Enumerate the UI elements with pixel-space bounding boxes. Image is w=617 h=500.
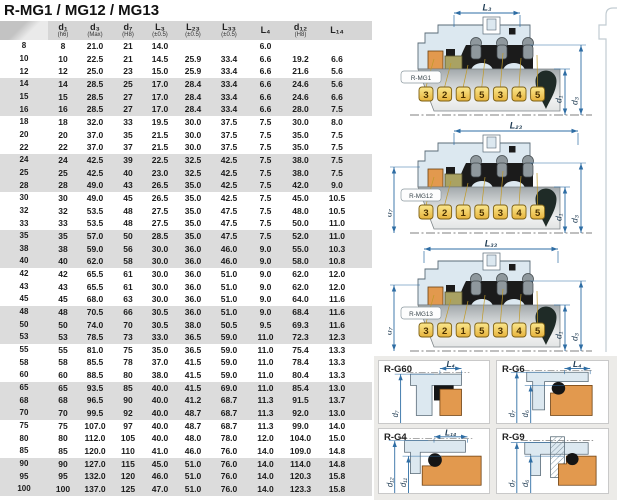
value-cell: 42.0 bbox=[283, 179, 318, 192]
row-size-cell: 15 bbox=[0, 91, 48, 104]
value-cell: 35 bbox=[112, 129, 144, 142]
inner-dia-label: d₁ bbox=[554, 331, 564, 339]
callout-4: 4 bbox=[512, 87, 526, 101]
table-row: 222237.03721.530.037.57.535.07.5 bbox=[0, 141, 372, 154]
value-cell: 9.0 bbox=[248, 268, 283, 281]
value-cell: 7.5 bbox=[248, 154, 283, 167]
value-cell: 59.0 bbox=[78, 243, 112, 256]
row-filler bbox=[356, 318, 372, 331]
top-dimension-label: L₃₃ bbox=[485, 239, 498, 249]
seal-diagram-r-mg1: R-MG13215345L₃d₁d₃ bbox=[388, 3, 617, 121]
svg-text:3: 3 bbox=[423, 326, 428, 337]
row-filler bbox=[356, 306, 372, 319]
value-cell: 35.0 bbox=[144, 344, 176, 357]
svg-text:3: 3 bbox=[498, 326, 503, 337]
row-filler bbox=[356, 458, 372, 471]
value-cell: 59.0 bbox=[210, 331, 248, 344]
value-cell: 11.6 bbox=[318, 306, 356, 319]
value-cell: 7.5 bbox=[248, 205, 283, 218]
column-header: d₁₂(H8) bbox=[283, 21, 318, 40]
value-cell: 70 bbox=[48, 407, 78, 420]
table-row: 7575107.09740.048.768.711.399.014.0 bbox=[0, 420, 372, 433]
value-cell: 41.5 bbox=[176, 369, 210, 382]
seat-panel-r-g6: L₄d₇d₆R-G6 bbox=[496, 360, 609, 424]
row-size-cell: 95 bbox=[0, 470, 48, 483]
value-cell: 112.0 bbox=[78, 432, 112, 445]
row-filler bbox=[356, 192, 372, 205]
value-cell: 41.5 bbox=[176, 382, 210, 395]
value-cell: 36.0 bbox=[176, 243, 210, 256]
svg-text:3: 3 bbox=[423, 90, 428, 101]
value-cell: 15.8 bbox=[318, 470, 356, 483]
value-cell: 21 bbox=[112, 40, 144, 53]
value-cell: 76.0 bbox=[210, 483, 248, 496]
dimension-table: d₁(h6)d₃(Max)d₇(H8)L₃(±0.5)L₂₃(±0.5)L₃₃(… bbox=[0, 21, 372, 496]
row-size-cell: 53 bbox=[0, 331, 48, 344]
value-cell: 11.6 bbox=[318, 318, 356, 331]
value-cell: 26.5 bbox=[144, 192, 176, 205]
row-size-cell: 80 bbox=[0, 432, 48, 445]
seal-diagram-svg: R-MG123215345L₂₃d₁d₃d₇ bbox=[388, 121, 617, 239]
row-size-cell: 33 bbox=[0, 217, 48, 230]
value-cell: 80.4 bbox=[283, 369, 318, 382]
row-size-cell: 16 bbox=[0, 103, 48, 116]
value-cell: 37.5 bbox=[210, 116, 248, 129]
table-row: 161628.52717.028.433.46.628.07.5 bbox=[0, 103, 372, 116]
value-cell: 30.0 bbox=[283, 116, 318, 129]
value-cell: 73 bbox=[112, 331, 144, 344]
value-cell: 6.6 bbox=[248, 78, 283, 91]
table-row: 606088.58038.041.559.011.080.413.3 bbox=[0, 369, 372, 382]
value-cell: 85 bbox=[112, 382, 144, 395]
value-cell: 92 bbox=[112, 407, 144, 420]
value-cell: 15.0 bbox=[318, 432, 356, 445]
table-row: 505074.07030.538.050.59.569.311.6 bbox=[0, 318, 372, 331]
callout-4: 4 bbox=[512, 323, 526, 337]
callout-3: 3 bbox=[493, 87, 507, 101]
value-cell: 80 bbox=[112, 369, 144, 382]
corner-header bbox=[0, 21, 48, 40]
value-cell: 40 bbox=[112, 167, 144, 180]
dia-dimension-label: d₁₂ bbox=[385, 477, 394, 487]
value-cell: 14.0 bbox=[144, 40, 176, 53]
value-cell: 24 bbox=[48, 154, 78, 167]
value-cell: 23 bbox=[112, 65, 144, 78]
value-cell: 40 bbox=[48, 255, 78, 268]
page-title: R-MG1 / MG12 / MG13 bbox=[4, 2, 159, 19]
callout-2: 2 bbox=[438, 205, 452, 219]
value-cell: 100 bbox=[48, 483, 78, 496]
table-row: 8585120.011041.046.076.014.0109.014.8 bbox=[0, 445, 372, 458]
header-filler bbox=[356, 21, 372, 40]
value-cell: 107.0 bbox=[78, 420, 112, 433]
value-cell: 11.6 bbox=[318, 293, 356, 306]
value-cell: 14.0 bbox=[248, 483, 283, 496]
value-cell: 30.5 bbox=[144, 306, 176, 319]
table-row: 434365.56130.036.051.09.062.012.0 bbox=[0, 280, 372, 293]
value-cell: 22.5 bbox=[144, 154, 176, 167]
callout-3: 3 bbox=[419, 323, 433, 337]
row-size-cell: 68 bbox=[0, 394, 48, 407]
column-header: L₃(±0.5) bbox=[144, 21, 176, 40]
value-cell: 42.5 bbox=[210, 179, 248, 192]
value-cell: 27.5 bbox=[144, 205, 176, 218]
oring bbox=[428, 453, 442, 467]
svg-text:5: 5 bbox=[535, 208, 541, 219]
value-cell: 30.0 bbox=[176, 129, 210, 142]
value-cell: 25.9 bbox=[176, 65, 210, 78]
value-cell: 105 bbox=[112, 432, 144, 445]
value-cell: 42.5 bbox=[210, 192, 248, 205]
value-cell: 123.3 bbox=[283, 483, 318, 496]
value-cell: 59.0 bbox=[210, 356, 248, 369]
value-cell: 10.5 bbox=[318, 192, 356, 205]
row-size-cell: 28 bbox=[0, 179, 48, 192]
value-cell: 24.6 bbox=[283, 91, 318, 104]
table-row: 141428.52517.028.433.46.624.65.6 bbox=[0, 78, 372, 91]
value-cell: 40.0 bbox=[144, 407, 176, 420]
row-filler bbox=[356, 420, 372, 433]
svg-text:2: 2 bbox=[442, 208, 447, 219]
value-cell: 21.0 bbox=[78, 40, 112, 53]
top-dimension-label: L₄ bbox=[446, 361, 454, 369]
table-row: 484870.56630.536.051.09.068.411.6 bbox=[0, 306, 372, 319]
value-cell: 11.0 bbox=[248, 382, 283, 395]
value-cell: 32.0 bbox=[78, 116, 112, 129]
value-cell: 57.0 bbox=[78, 230, 112, 243]
value-cell: 53 bbox=[48, 331, 78, 344]
row-size-cell: 60 bbox=[0, 369, 48, 382]
value-cell: 61 bbox=[112, 268, 144, 281]
value-cell: 7.5 bbox=[248, 230, 283, 243]
row-filler bbox=[356, 103, 372, 116]
value-cell: 36.0 bbox=[176, 306, 210, 319]
value-cell: 40.0 bbox=[144, 432, 176, 445]
row-size-cell: 38 bbox=[0, 243, 48, 256]
row-filler bbox=[356, 268, 372, 281]
value-cell: 35.0 bbox=[176, 230, 210, 243]
value-cell: 22.5 bbox=[78, 53, 112, 66]
value-cell: 33.4 bbox=[210, 65, 248, 78]
value-cell: 28.5 bbox=[144, 230, 176, 243]
table-row: 707099.59240.048.768.711.392.013.0 bbox=[0, 407, 372, 420]
value-cell: 36.0 bbox=[176, 293, 210, 306]
seat-panel-label: R-G4 bbox=[384, 432, 407, 443]
svg-text:2: 2 bbox=[442, 326, 447, 337]
row-size-cell: 20 bbox=[0, 129, 48, 142]
value-cell: 51.0 bbox=[210, 268, 248, 281]
value-cell: 59.0 bbox=[210, 344, 248, 357]
value-cell: 40.0 bbox=[144, 420, 176, 433]
row-filler bbox=[356, 445, 372, 458]
value-cell: 7.5 bbox=[248, 167, 283, 180]
table-row: 242442.53922.532.542.57.538.07.5 bbox=[0, 154, 372, 167]
row-size-cell: 10 bbox=[0, 53, 48, 66]
svg-text:5: 5 bbox=[479, 326, 485, 337]
value-cell: 11.0 bbox=[318, 217, 356, 230]
diagram-label: R-MG1 bbox=[411, 75, 432, 82]
table-row: 252542.54023.032.542.57.538.07.5 bbox=[0, 167, 372, 180]
value-cell: 36.0 bbox=[176, 280, 210, 293]
value-cell: 12.3 bbox=[318, 331, 356, 344]
value-cell: 40.0 bbox=[144, 382, 176, 395]
value-cell: 45.0 bbox=[144, 458, 176, 471]
value-cell: 36.5 bbox=[176, 344, 210, 357]
value-cell: 7.5 bbox=[318, 167, 356, 180]
row-size-cell: 18 bbox=[0, 116, 48, 129]
value-cell: 42 bbox=[48, 268, 78, 281]
diagram-label: R-MG12 bbox=[409, 193, 433, 200]
value-cell: 49.0 bbox=[78, 179, 112, 192]
row-filler bbox=[356, 40, 372, 53]
row-size-cell: 48 bbox=[0, 306, 48, 319]
value-cell: 18 bbox=[48, 116, 78, 129]
row-size-cell: 14 bbox=[0, 78, 48, 91]
value-cell: 74.0 bbox=[78, 318, 112, 331]
table-row: 9595132.012046.051.076.014.0120.315.8 bbox=[0, 470, 372, 483]
value-cell: 120 bbox=[112, 470, 144, 483]
value-cell: 49.0 bbox=[78, 192, 112, 205]
value-cell: 38.0 bbox=[176, 318, 210, 331]
row-filler bbox=[356, 344, 372, 357]
value-cell: 51.0 bbox=[176, 470, 210, 483]
value-cell: 32 bbox=[48, 205, 78, 218]
value-cell: 120.3 bbox=[283, 470, 318, 483]
value-cell: 14.0 bbox=[318, 420, 356, 433]
table-row: 686896.59040.041.268.711.391.513.7 bbox=[0, 394, 372, 407]
value-cell: 43 bbox=[48, 280, 78, 293]
table-row: 151528.52717.028.433.46.624.66.6 bbox=[0, 91, 372, 104]
value-cell: 7.5 bbox=[248, 179, 283, 192]
inner-dia-label: d₁ bbox=[554, 213, 564, 221]
value-cell: 35 bbox=[48, 230, 78, 243]
catalog-page: R-MG1 / MG12 / MG13 d₁(h6)d₃(Max)d₇(H8)L… bbox=[0, 0, 617, 500]
column-header: d₁(h6) bbox=[48, 21, 78, 40]
value-cell: 28.0 bbox=[283, 103, 318, 116]
seat-ring bbox=[428, 169, 443, 187]
row-filler bbox=[356, 154, 372, 167]
row-filler bbox=[356, 65, 372, 78]
value-cell: 51.0 bbox=[210, 280, 248, 293]
value-cell: 17.0 bbox=[144, 78, 176, 91]
value-cell: 62.0 bbox=[283, 268, 318, 281]
value-cell: 68.7 bbox=[210, 407, 248, 420]
oring bbox=[552, 382, 565, 395]
value-cell: 50.5 bbox=[210, 318, 248, 331]
value-cell: 68 bbox=[48, 394, 78, 407]
value-cell: 40.0 bbox=[144, 394, 176, 407]
value-cell bbox=[283, 40, 318, 53]
value-cell: 99.0 bbox=[283, 420, 318, 433]
value-cell: 10.3 bbox=[318, 243, 356, 256]
value-cell: 51.0 bbox=[210, 306, 248, 319]
table-row: 202037.03521.530.037.57.535.07.5 bbox=[0, 129, 372, 142]
value-cell: 35.0 bbox=[176, 217, 210, 230]
value-cell: 85 bbox=[48, 445, 78, 458]
row-size-cell: 40 bbox=[0, 255, 48, 268]
value-cell: 92.0 bbox=[283, 407, 318, 420]
value-cell: 48.7 bbox=[176, 420, 210, 433]
svg-text:5: 5 bbox=[535, 326, 541, 337]
table-row: 181832.03319.530.037.57.530.08.0 bbox=[0, 116, 372, 129]
value-cell: 125 bbox=[112, 483, 144, 496]
value-cell: 12 bbox=[48, 65, 78, 78]
value-cell: 6.0 bbox=[248, 40, 283, 53]
left-dia-label: d₇ bbox=[388, 326, 394, 335]
value-cell: 20 bbox=[48, 129, 78, 142]
value-cell: 25.0 bbox=[78, 65, 112, 78]
row-size-cell: 32 bbox=[0, 205, 48, 218]
value-cell: 38.0 bbox=[144, 369, 176, 382]
table-row: 555581.07535.036.559.011.075.413.3 bbox=[0, 344, 372, 357]
seat-panel-label: R-G60 bbox=[384, 364, 412, 375]
seat bbox=[440, 389, 462, 415]
value-cell: 70 bbox=[112, 318, 144, 331]
oring bbox=[566, 453, 578, 465]
table-row: 323253.54827.535.047.57.548.010.5 bbox=[0, 205, 372, 218]
value-cell: 37.5 bbox=[210, 141, 248, 154]
value-cell: 28.4 bbox=[176, 78, 210, 91]
value-cell: 36.5 bbox=[176, 331, 210, 344]
table-row: 424265.56130.036.051.09.062.012.0 bbox=[0, 268, 372, 281]
value-cell: 61 bbox=[112, 280, 144, 293]
value-cell: 27.5 bbox=[144, 217, 176, 230]
value-cell: 72.3 bbox=[283, 331, 318, 344]
value-cell: 78.0 bbox=[210, 432, 248, 445]
value-cell: 11.0 bbox=[248, 356, 283, 369]
svg-text:1: 1 bbox=[461, 90, 467, 101]
value-cell: 55 bbox=[48, 344, 78, 357]
value-cell: 7.5 bbox=[318, 141, 356, 154]
top-dimension-label: L₄ bbox=[573, 361, 581, 369]
value-cell: 58 bbox=[48, 356, 78, 369]
value-cell: 42.5 bbox=[210, 167, 248, 180]
value-cell: 76.0 bbox=[210, 458, 248, 471]
table-row: 100100137.012547.051.076.014.0123.315.8 bbox=[0, 483, 372, 496]
value-cell: 28 bbox=[48, 179, 78, 192]
row-size-cell: 8 bbox=[0, 40, 48, 53]
value-cell: 6.6 bbox=[248, 53, 283, 66]
value-cell: 12.0 bbox=[318, 280, 356, 293]
value-cell: 50 bbox=[112, 230, 144, 243]
value-cell: 114.0 bbox=[283, 458, 318, 471]
value-cell: 96.5 bbox=[78, 394, 112, 407]
value-cell: 52.0 bbox=[283, 230, 318, 243]
callout-3: 3 bbox=[419, 87, 433, 101]
value-cell: 7.5 bbox=[248, 116, 283, 129]
value-cell: 38.0 bbox=[283, 167, 318, 180]
value-cell: 38.0 bbox=[283, 154, 318, 167]
value-cell: 16 bbox=[48, 103, 78, 116]
value-cell: 14.8 bbox=[318, 445, 356, 458]
value-cell: 35.0 bbox=[283, 141, 318, 154]
value-cell: 7.5 bbox=[318, 129, 356, 142]
value-cell: 15.0 bbox=[144, 65, 176, 78]
value-cell: 6.6 bbox=[248, 91, 283, 104]
svg-text:3: 3 bbox=[498, 208, 503, 219]
row-size-cell: 12 bbox=[0, 65, 48, 78]
table-row: 383859.05630.036.046.09.055.010.3 bbox=[0, 243, 372, 256]
value-cell: 7.5 bbox=[248, 192, 283, 205]
value-cell: 48 bbox=[112, 205, 144, 218]
value-cell: 43 bbox=[112, 179, 144, 192]
value-cell: 21.5 bbox=[144, 129, 176, 142]
callout-5: 5 bbox=[475, 323, 489, 337]
value-cell: 17.0 bbox=[144, 103, 176, 116]
value-cell: 37.0 bbox=[78, 129, 112, 142]
row-size-cell: 70 bbox=[0, 407, 48, 420]
value-cell: 26.5 bbox=[144, 179, 176, 192]
value-cell: 27 bbox=[112, 103, 144, 116]
value-cell: 75 bbox=[112, 344, 144, 357]
value-cell: 50 bbox=[48, 318, 78, 331]
value-cell: 9.0 bbox=[248, 293, 283, 306]
value-cell: 48 bbox=[48, 306, 78, 319]
value-cell: 78 bbox=[112, 356, 144, 369]
svg-text:4: 4 bbox=[516, 90, 522, 101]
value-cell: 28.5 bbox=[78, 103, 112, 116]
value-cell: 68.7 bbox=[210, 420, 248, 433]
row-filler bbox=[356, 116, 372, 129]
value-cell: 37 bbox=[112, 141, 144, 154]
value-cell: 33 bbox=[112, 116, 144, 129]
value-cell: 33 bbox=[48, 217, 78, 230]
value-cell: 37.5 bbox=[210, 129, 248, 142]
value-cell: 85.4 bbox=[283, 382, 318, 395]
value-cell: 30.0 bbox=[176, 141, 210, 154]
dia-dimension-label: d₆ bbox=[521, 410, 530, 417]
value-cell: 41.0 bbox=[144, 445, 176, 458]
value-cell: 38 bbox=[48, 243, 78, 256]
svg-text:5: 5 bbox=[479, 90, 485, 101]
value-cell: 42.5 bbox=[78, 154, 112, 167]
seal-face-ring bbox=[445, 56, 462, 69]
value-cell: 33.0 bbox=[144, 331, 176, 344]
value-cell: 90 bbox=[112, 394, 144, 407]
value-cell: 9.0 bbox=[318, 179, 356, 192]
value-cell: 99.5 bbox=[78, 407, 112, 420]
callout-1: 1 bbox=[456, 205, 470, 219]
table-row: 121225.02315.025.933.46.621.65.6 bbox=[0, 65, 372, 78]
value-cell: 13.0 bbox=[318, 382, 356, 395]
value-cell: 46.0 bbox=[210, 255, 248, 268]
value-cell: 13.3 bbox=[318, 356, 356, 369]
table-row: 585885.57837.041.559.011.078.413.3 bbox=[0, 356, 372, 369]
value-cell: 15.8 bbox=[318, 483, 356, 496]
value-cell: 93.5 bbox=[78, 382, 112, 395]
value-cell: 68.7 bbox=[210, 394, 248, 407]
table-row: 101022.52114.525.933.46.619.26.6 bbox=[0, 53, 372, 66]
value-cell: 68.0 bbox=[78, 293, 112, 306]
value-cell: 69.3 bbox=[283, 318, 318, 331]
row-filler bbox=[356, 382, 372, 395]
value-cell: 28.4 bbox=[176, 91, 210, 104]
value-cell: 80 bbox=[48, 432, 78, 445]
value-cell: 42.5 bbox=[78, 167, 112, 180]
value-cell: 58.0 bbox=[283, 255, 318, 268]
callout-1: 1 bbox=[456, 87, 470, 101]
value-cell: 11.0 bbox=[248, 344, 283, 357]
value-cell bbox=[176, 40, 210, 53]
outer-dia-label: d₃ bbox=[570, 96, 580, 105]
top-dimension-label: L₂₃ bbox=[510, 121, 523, 131]
value-cell: 30.0 bbox=[144, 243, 176, 256]
value-cell: 53.5 bbox=[78, 205, 112, 218]
seal-face-ring bbox=[445, 174, 462, 187]
value-cell: 39 bbox=[112, 154, 144, 167]
value-cell: 65.5 bbox=[78, 280, 112, 293]
seal-diagram-svg: R-MG133215345L₃₃d₁d₃d₇ bbox=[388, 239, 617, 357]
